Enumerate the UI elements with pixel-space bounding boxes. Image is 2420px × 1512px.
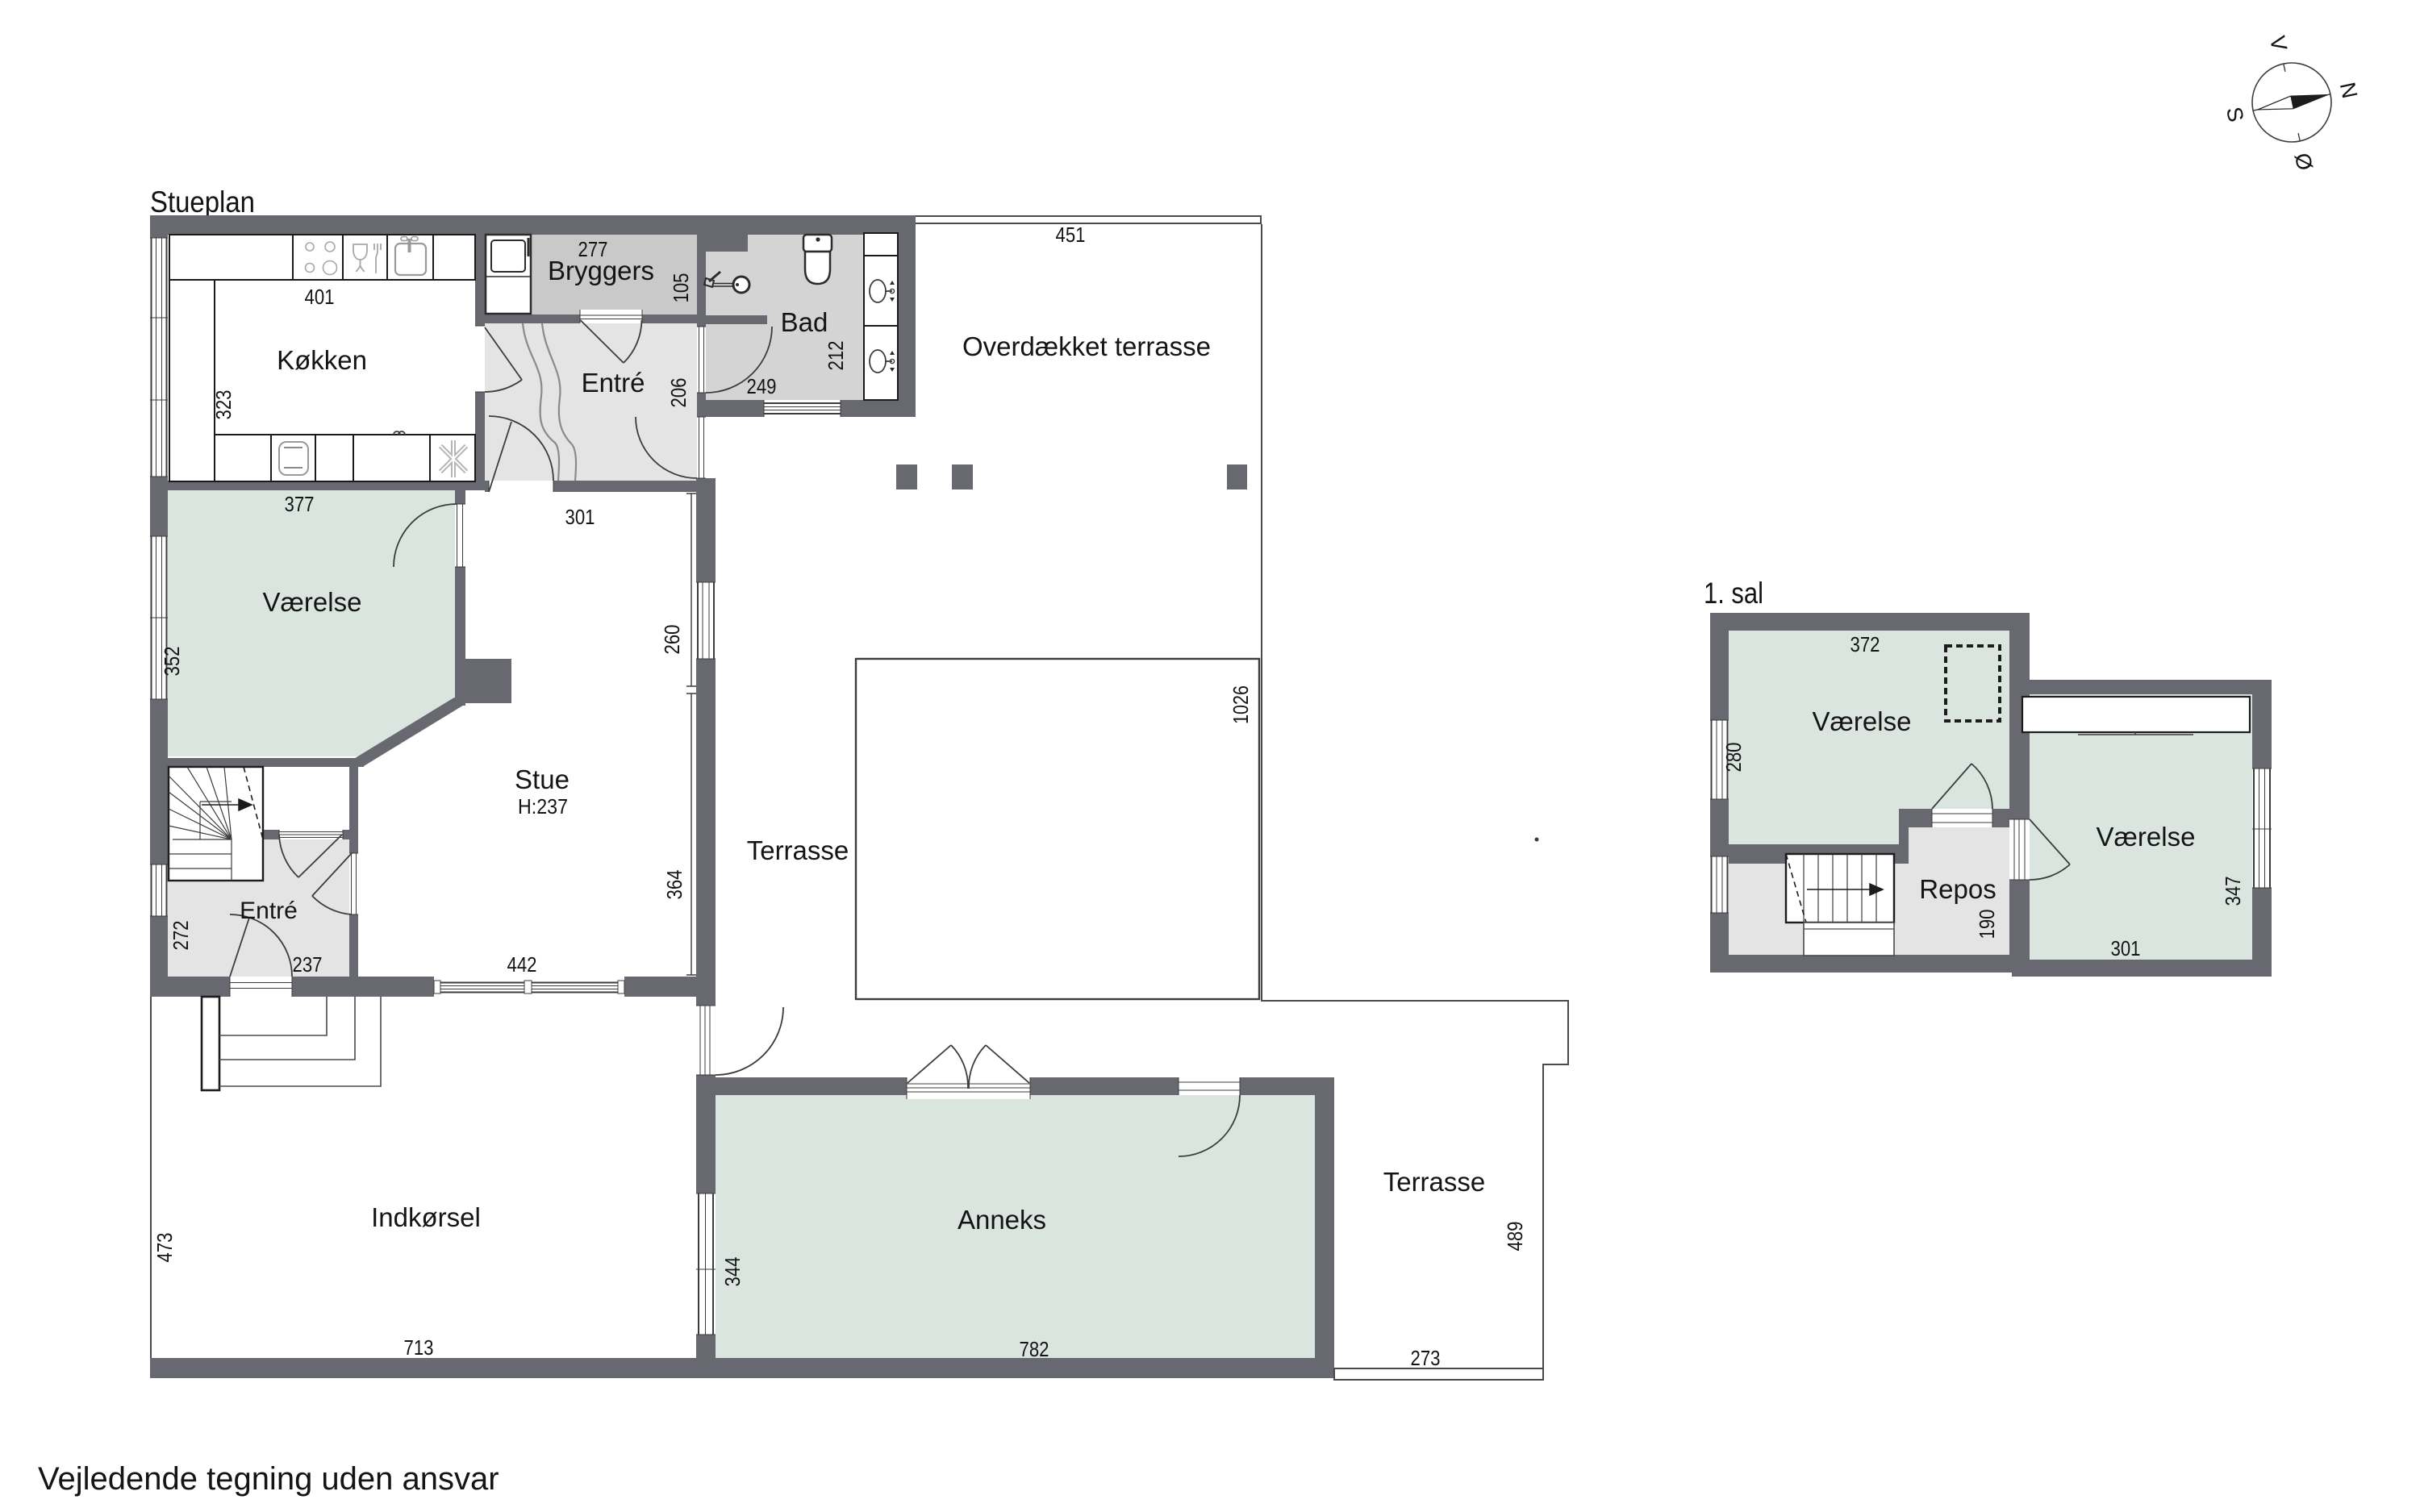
svg-text:Stue: Stue: [515, 764, 570, 794]
svg-text:Entré: Entré: [582, 368, 645, 398]
svg-text:273: 273: [1411, 1346, 1441, 1370]
svg-text:364: 364: [662, 870, 686, 900]
svg-text:Overdækket terrasse: Overdækket terrasse: [962, 331, 1211, 361]
svg-text:190: 190: [1975, 910, 1999, 939]
svg-text:Værelse: Værelse: [1813, 706, 1912, 736]
svg-text:237: 237: [293, 952, 323, 977]
svg-text:Repos: Repos: [1919, 874, 1996, 904]
svg-text:372: 372: [1850, 632, 1880, 656]
svg-text:272: 272: [169, 921, 193, 951]
svg-text:782: 782: [1020, 1337, 1049, 1361]
svg-text:Entré: Entré: [240, 898, 298, 924]
svg-text:Terrasse: Terrasse: [1383, 1167, 1486, 1197]
svg-text:401: 401: [305, 285, 335, 309]
svg-text:344: 344: [720, 1257, 745, 1287]
svg-text:Køkken: Køkken: [277, 345, 367, 375]
svg-text:Terrasse: Terrasse: [747, 835, 849, 865]
svg-text:Vejledende tegning uden ansvar: Vejledende tegning uden ansvar: [38, 1461, 499, 1497]
svg-text:212: 212: [824, 341, 848, 371]
svg-text:323: 323: [211, 390, 236, 420]
svg-text:260: 260: [660, 625, 684, 655]
svg-text:249: 249: [747, 374, 777, 398]
svg-text:Indkørsel: Indkørsel: [371, 1202, 481, 1232]
svg-text:451: 451: [1056, 223, 1086, 247]
svg-text:Bryggers: Bryggers: [548, 256, 654, 285]
svg-text:H:237: H:237: [518, 794, 568, 818]
svg-text:Værelse: Værelse: [2097, 822, 2196, 852]
svg-text:473: 473: [152, 1233, 177, 1263]
svg-text:301: 301: [565, 505, 595, 529]
svg-text:105: 105: [669, 273, 693, 303]
svg-text:206: 206: [666, 378, 691, 408]
svg-text:Stueplan: Stueplan: [150, 185, 255, 219]
svg-text:Værelse: Værelse: [263, 587, 362, 617]
svg-text:Anneks: Anneks: [958, 1205, 1046, 1235]
svg-text:301: 301: [2111, 936, 2141, 960]
svg-text:Bad: Bad: [781, 307, 828, 337]
svg-text:1026: 1026: [1229, 685, 1253, 724]
svg-text:377: 377: [285, 492, 315, 516]
svg-text:713: 713: [404, 1335, 434, 1360]
svg-text:442: 442: [507, 952, 537, 977]
svg-text:352: 352: [160, 647, 184, 677]
svg-text:1. sal: 1. sal: [1704, 577, 1763, 610]
svg-text:280: 280: [1721, 743, 1746, 773]
svg-text:489: 489: [1503, 1222, 1527, 1252]
svg-text:347: 347: [2221, 877, 2245, 906]
